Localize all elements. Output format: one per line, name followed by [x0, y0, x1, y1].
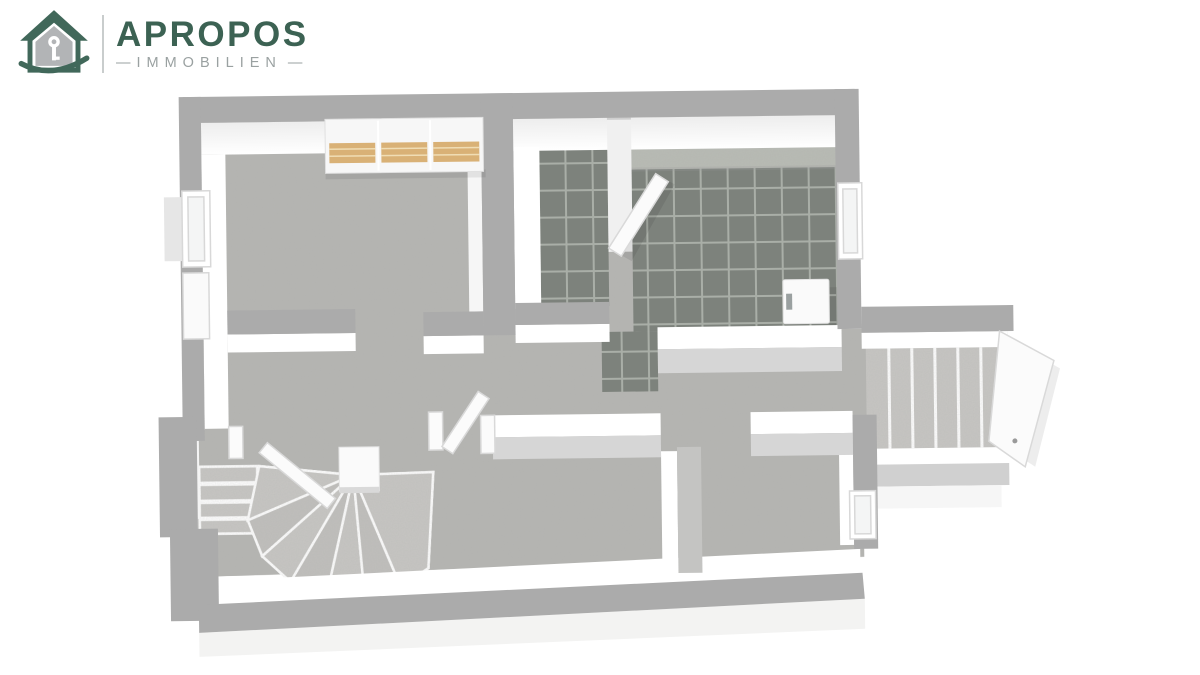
shower-niche-floor: [537, 140, 609, 307]
wardrobe: [325, 117, 486, 179]
entry-staircase: [866, 347, 1003, 449]
entry-door: [988, 330, 1062, 467]
window-left: [164, 191, 211, 268]
bathroom-doorway-floor: [602, 331, 659, 392]
stair-post: [339, 447, 380, 493]
floorplan-render: [0, 0, 1200, 675]
window-bathroom-right: [838, 183, 863, 259]
washing-machine: [783, 279, 838, 326]
window-bottom-right: [849, 491, 876, 539]
window-left-lower: [183, 273, 210, 339]
page: { "logo": { "brand": "APROPOS", "subtitl…: [0, 0, 1200, 675]
